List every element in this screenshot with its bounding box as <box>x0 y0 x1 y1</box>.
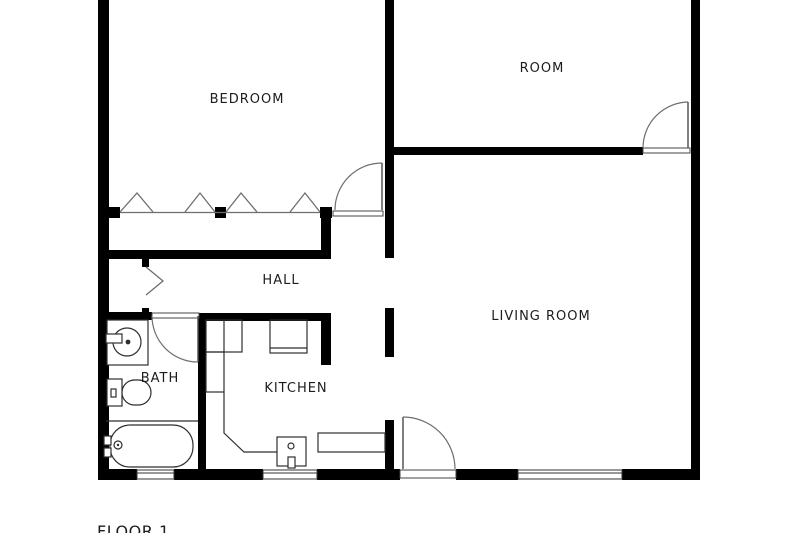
bath-door <box>152 316 198 362</box>
bath-window <box>137 470 174 479</box>
toilet-tank <box>107 379 122 406</box>
room-label-hall: HALL <box>262 273 299 288</box>
bathtub-tap <box>104 436 111 445</box>
hall-door-stub <box>142 258 149 267</box>
bath-kitchen-divider-wall <box>198 313 206 469</box>
exterior-walls <box>98 0 700 480</box>
bedroom-door-threshold <box>333 211 383 216</box>
bottom-wall-segment <box>622 469 700 480</box>
right-wall <box>691 0 700 480</box>
entry-door-threshold <box>400 470 456 478</box>
bottom-wall-segment <box>317 469 400 480</box>
washing-machine-tray <box>106 334 122 343</box>
livingroom-left-wall-segment <box>385 420 394 469</box>
bathtub-tap <box>104 448 111 457</box>
dishwasher-counter <box>318 433 385 452</box>
closet-post <box>320 207 332 218</box>
kitchen-sink <box>277 437 306 468</box>
hall-folding-door <box>146 267 163 295</box>
room-label-room: ROOM <box>520 61 565 76</box>
closet-post <box>108 207 120 218</box>
room-door-arc <box>643 102 688 148</box>
counter-front-edge <box>224 392 277 452</box>
room-door <box>643 102 688 148</box>
livingroom-left-wall-segment <box>385 308 394 357</box>
closet-side-wall <box>321 218 331 252</box>
room-door-threshold <box>643 148 690 153</box>
hall-closet-wall <box>105 250 331 259</box>
room-livingroom-wall <box>385 147 643 155</box>
floor-plan-drawing <box>0 0 800 533</box>
bath-door-threshold <box>152 313 199 318</box>
kitchen-window <box>263 470 317 479</box>
room-label-bedroom: BEDROOM <box>210 92 285 107</box>
hall-door-stub <box>142 308 149 314</box>
bedroom-door <box>335 163 382 210</box>
entry-door-arc <box>403 417 455 469</box>
floor-plan-canvas: BEDROOM ROOM HALL BATH KITCHEN LIVING RO… <box>0 0 800 533</box>
washing-machine-knob <box>126 340 131 345</box>
bedroom-door-arc <box>335 163 382 210</box>
entry-door <box>403 417 455 469</box>
bottom-wall-segment <box>456 469 518 480</box>
stove <box>270 320 307 353</box>
folding-door-panel <box>120 193 153 212</box>
room-label-bath: BATH <box>141 371 180 386</box>
bath-door-arc <box>152 316 198 362</box>
bathtub-drain-dot <box>117 444 119 446</box>
left-wall <box>98 0 109 480</box>
bottom-wall-segment <box>174 469 263 480</box>
living-room-window <box>518 470 622 479</box>
room-label-living-room: LIVING ROOM <box>491 309 590 324</box>
bedroom-room-divider-wall <box>385 0 394 258</box>
counter-block <box>206 352 224 392</box>
kitchen-wall-stub <box>321 321 331 365</box>
bottom-wall-segment <box>98 469 137 480</box>
folding-door-panel <box>226 193 257 212</box>
floor-title: FLOOR 1 <box>97 522 170 533</box>
room-label-kitchen: KITCHEN <box>264 381 327 396</box>
sink-faucet <box>288 457 295 468</box>
washing-machine <box>106 320 148 365</box>
folding-door-panel <box>290 193 320 212</box>
bathtub <box>104 425 193 467</box>
folding-door-panel <box>185 193 215 212</box>
